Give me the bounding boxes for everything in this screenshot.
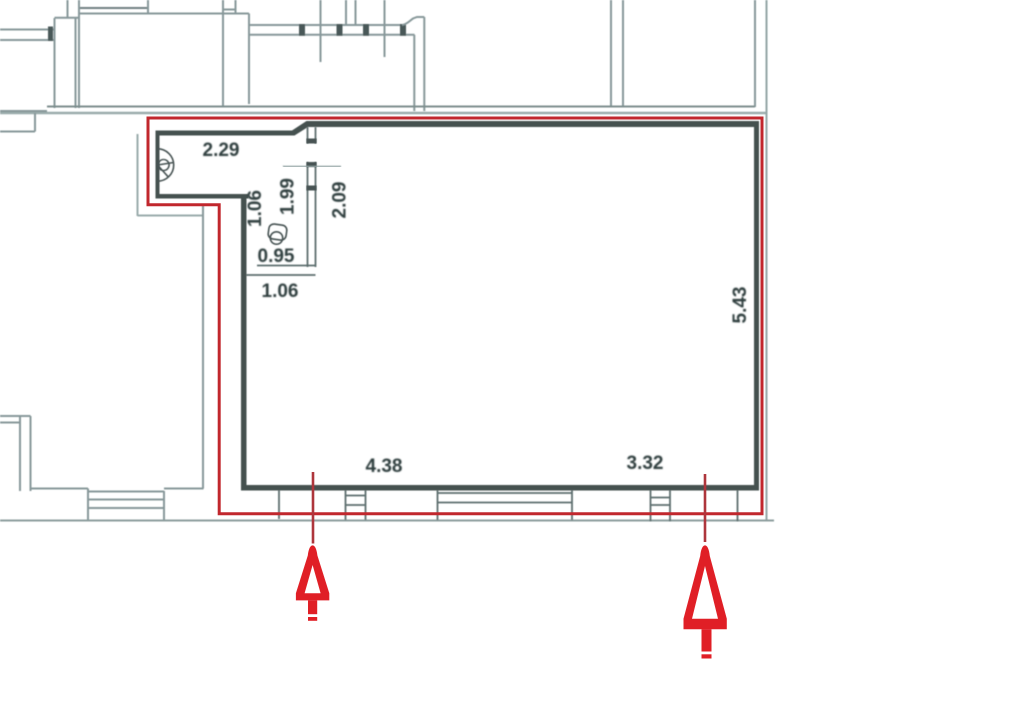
svg-text:2.09: 2.09 bbox=[330, 182, 351, 219]
svg-text:1.06: 1.06 bbox=[262, 281, 299, 302]
svg-text:3.32: 3.32 bbox=[627, 453, 664, 474]
svg-text:2.29: 2.29 bbox=[203, 140, 240, 161]
svg-text:4.38: 4.38 bbox=[366, 456, 403, 477]
svg-text:5.43: 5.43 bbox=[730, 287, 751, 324]
svg-text:1.06: 1.06 bbox=[245, 190, 266, 227]
svg-text:0.95: 0.95 bbox=[258, 246, 295, 267]
svg-text:1.99: 1.99 bbox=[278, 178, 299, 215]
